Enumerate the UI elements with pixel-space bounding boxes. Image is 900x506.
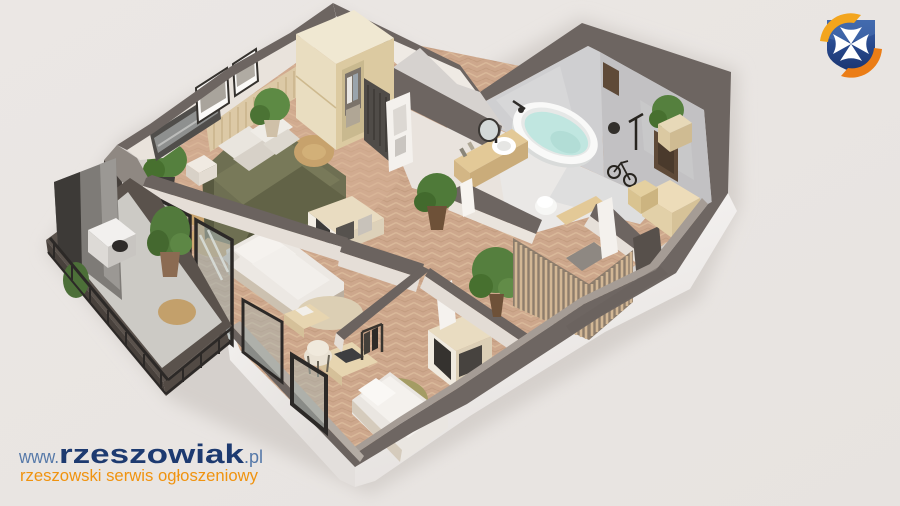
svg-text:.pl: .pl xyxy=(244,447,263,467)
svg-text:rzeszowski serwis ogłoszeniowy: rzeszowski serwis ogłoszeniowy xyxy=(20,467,259,485)
svg-text:www.: www. xyxy=(18,447,59,467)
svg-text:rzeszowiak: rzeszowiak xyxy=(59,439,245,469)
